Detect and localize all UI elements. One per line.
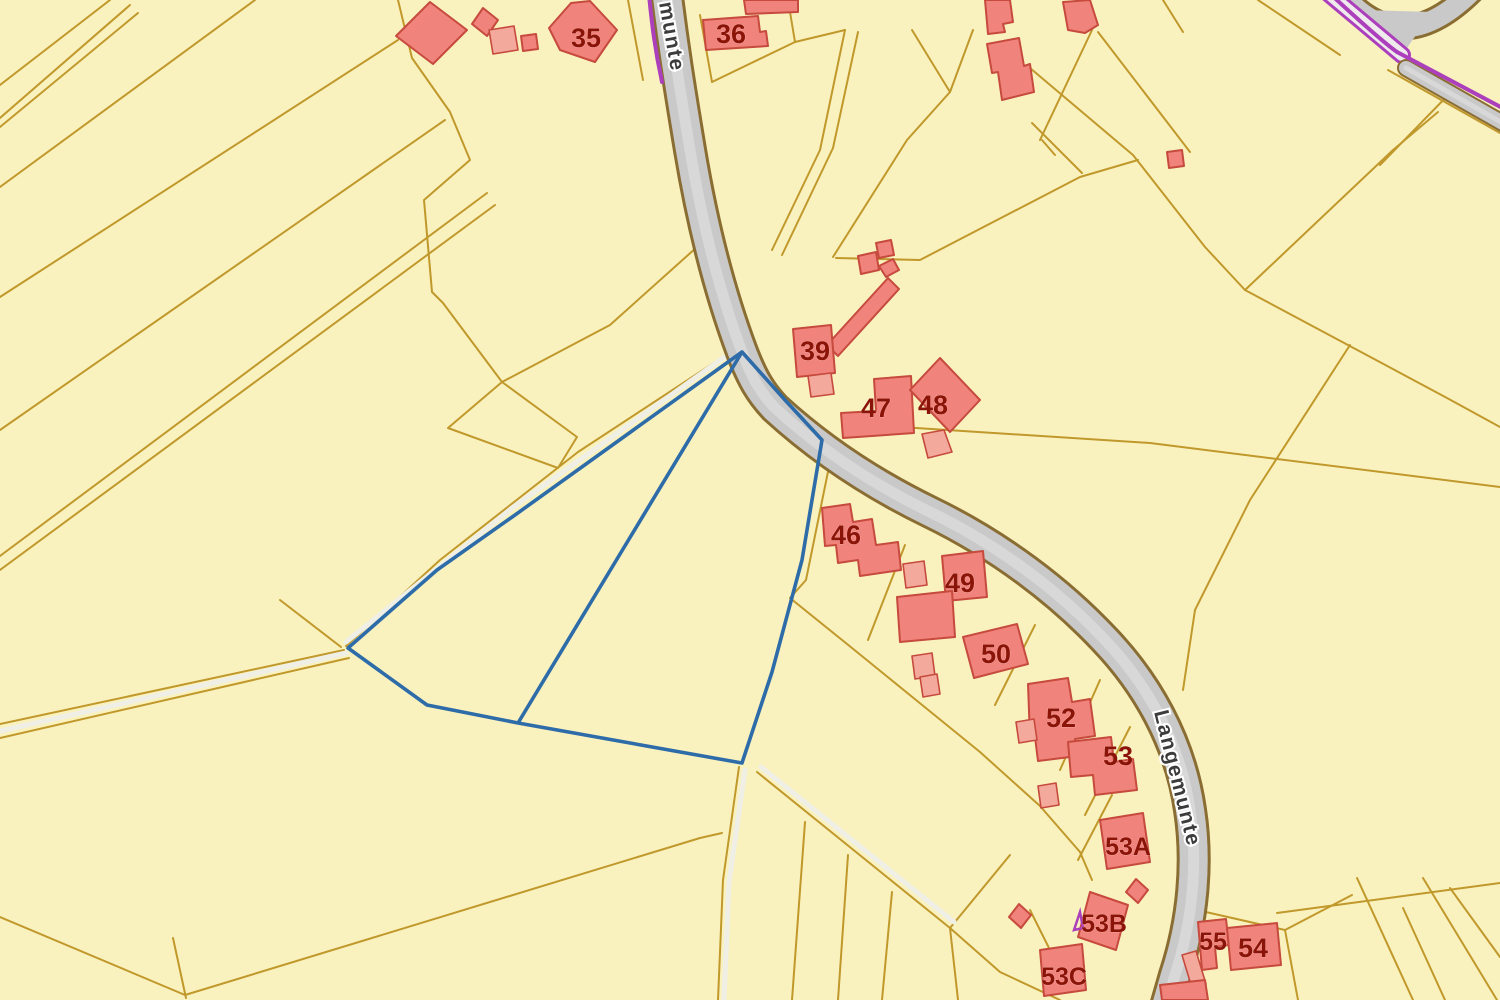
house-number-label: 55 xyxy=(1199,928,1227,956)
building xyxy=(876,240,894,258)
map-canvas[interactable]: 3536394748464950525353A53B53C5554 munteL… xyxy=(0,0,1500,1000)
building-49-wing xyxy=(897,591,955,642)
building xyxy=(744,0,798,14)
house-number-label: 47 xyxy=(861,393,891,423)
house-number-label: 53 xyxy=(1103,741,1133,771)
map-background xyxy=(0,0,1500,1000)
building xyxy=(1167,150,1184,168)
building xyxy=(1016,719,1037,743)
house-number-label: 54 xyxy=(1238,933,1268,963)
building xyxy=(808,373,834,397)
building xyxy=(903,561,927,588)
house-number-label: 53C xyxy=(1041,963,1087,991)
house-number-label: 39 xyxy=(800,336,830,366)
house-number-label: 53B xyxy=(1081,910,1127,938)
house-number-label: 48 xyxy=(918,390,948,420)
building xyxy=(521,34,538,51)
building xyxy=(489,26,518,54)
house-number-label: 49 xyxy=(945,568,975,598)
house-number-label: 50 xyxy=(981,639,1011,669)
house-number-label: 53A xyxy=(1105,833,1151,861)
house-number-label: 36 xyxy=(716,19,746,49)
building xyxy=(1038,783,1059,808)
building xyxy=(858,252,879,274)
building xyxy=(920,674,940,697)
house-number-label: 35 xyxy=(571,23,601,53)
house-number-label: 52 xyxy=(1046,703,1076,733)
house-number-label: 46 xyxy=(831,520,861,550)
